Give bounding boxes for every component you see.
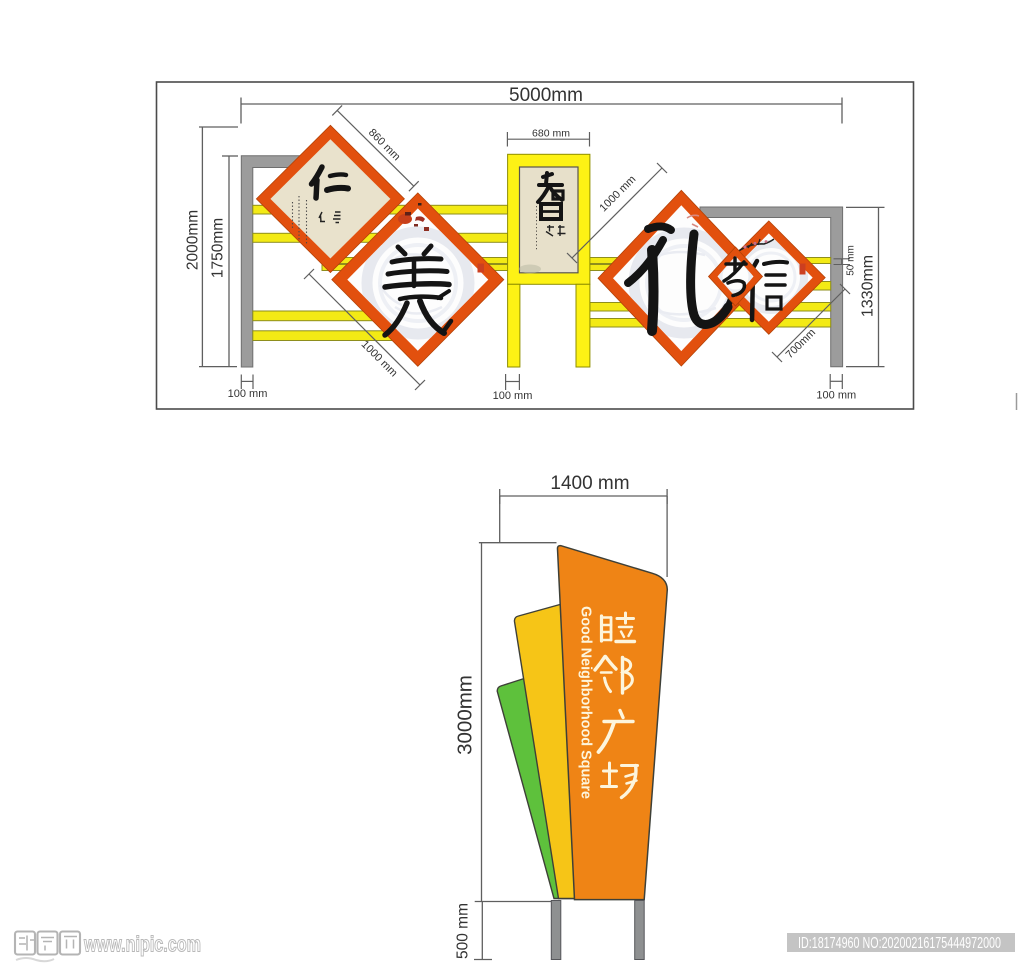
svg-text:5000mm: 5000mm	[509, 85, 583, 106]
svg-text:100 mm: 100 mm	[493, 390, 533, 402]
svg-text:1330mm: 1330mm	[860, 255, 877, 317]
svg-text:ID:18174960 NO:202002161754449: ID:18174960 NO:20200216175444972000	[798, 935, 1001, 952]
svg-text:500 mm: 500 mm	[455, 903, 472, 959]
svg-text:www.nipic.com: www.nipic.com	[83, 932, 201, 957]
svg-text:1750mm: 1750mm	[210, 218, 227, 278]
svg-text:1400 mm: 1400 mm	[550, 473, 629, 494]
svg-text:680 mm: 680 mm	[532, 128, 570, 140]
svg-text:50 mm: 50 mm	[846, 245, 857, 276]
svg-text:Good Neighborhood Square: Good Neighborhood Square	[578, 606, 594, 799]
svg-text:100 mm: 100 mm	[816, 390, 856, 402]
svg-text:2000mm: 2000mm	[185, 210, 202, 270]
svg-text:3000mm: 3000mm	[454, 675, 477, 755]
svg-text:100 mm: 100 mm	[228, 388, 268, 400]
